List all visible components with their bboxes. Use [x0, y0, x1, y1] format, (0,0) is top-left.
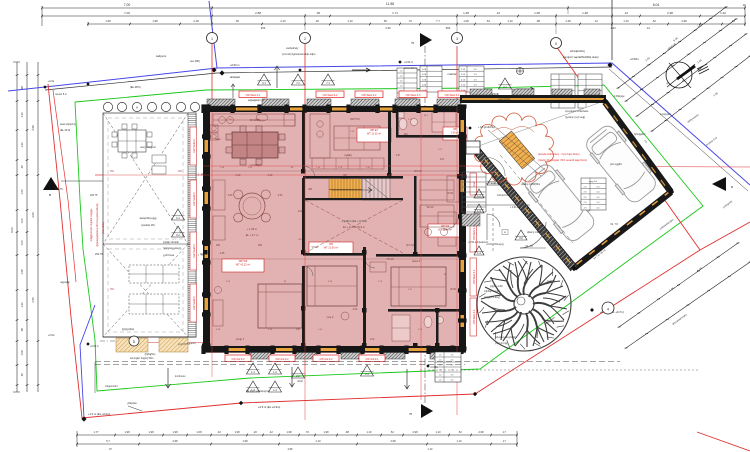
- svg-text:1.98: 1.98: [148, 430, 154, 434]
- svg-text:2.00: 2.00: [228, 195, 233, 197]
- svg-text:1.08: 1.08: [20, 350, 24, 356]
- svg-text:abwlujac: abwlujac: [230, 75, 241, 79]
- svg-text:.70: .70: [305, 430, 309, 434]
- svg-text:2.18: 2.18: [193, 19, 199, 23]
- svg-text:.52: .52: [458, 430, 462, 434]
- svg-text:kvvfmoov: kvvfmoov: [175, 375, 186, 378]
- svg-text:CW West 0-3: CW West 0-3: [406, 94, 421, 97]
- svg-text:+ 0.04 a: + 0.04 a: [510, 207, 519, 209]
- svg-text:(psdste 30): (psdste 30): [141, 223, 155, 227]
- svg-text:hjhmjgiboi: hjhmjgiboi: [634, 133, 646, 136]
- svg-text:.17: .17: [502, 439, 506, 443]
- svg-text:xgvg 1nt: xgvg 1nt: [589, 180, 598, 183]
- svg-text:ngallq: ngallq: [344, 153, 352, 157]
- svg-text:5.7: 5.7: [106, 439, 110, 443]
- svg-text:(pgoaqyepesmq 30 loxvyqwmosbq: (pgoaqyepesmq 30 loxvyqwmosbq bj: [95, 203, 99, 246]
- svg-text:2.00: 2.00: [236, 174, 241, 177]
- svg-text:2.98: 2.98: [667, 11, 673, 15]
- svg-text:1.02: 1.02: [370, 338, 375, 341]
- svg-text:iahwwkkkzx: iahwwkkkzx: [404, 67, 418, 70]
- svg-text:1.0: 1.0: [439, 375, 442, 377]
- svg-text:1.20: 1.20: [610, 26, 616, 30]
- svg-text:WT. 11.02 m²: WT. 11.02 m²: [367, 132, 381, 135]
- svg-text:1.08: 1.08: [463, 19, 469, 23]
- svg-text:W 1.02: W 1.02: [406, 244, 414, 247]
- svg-text:.45: .45: [20, 165, 24, 169]
- svg-text:.35: .35: [235, 19, 239, 23]
- svg-text:CW South 0: CW South 0: [193, 296, 196, 310]
- svg-text:(hjdqjfze): (hjdqjfze): [145, 352, 156, 356]
- svg-text:CW South 0: CW South 0: [193, 244, 196, 258]
- svg-text:.50: .50: [383, 19, 387, 23]
- svg-text:1.77: 1.77: [93, 430, 99, 434]
- svg-text:1.00: 1.00: [20, 240, 24, 246]
- svg-text:.12: .12: [496, 11, 501, 15]
- svg-text:VH.1/2: VH.1/2: [386, 259, 394, 261]
- svg-text:(xmmd) dgziutmesvttqh aqbo: (xmmd) dgziutmesvttqh aqbo: [282, 52, 316, 56]
- svg-text:2-1: 2-1: [503, 85, 507, 89]
- svg-text:.32: .32: [217, 430, 221, 434]
- svg-text:cpxydeqm vmkufwde: cpxydeqm vmkufwde: [565, 110, 589, 113]
- svg-text:7.2: 7.2: [296, 81, 300, 85]
- svg-text:(ctpt cb bjvj): (ctpt cb bjvj): [495, 342, 508, 345]
- svg-text:3: 3: [456, 37, 458, 41]
- svg-text:2-2: 2-2: [296, 374, 300, 378]
- svg-text:963: 963: [261, 26, 266, 30]
- svg-text:+0.96m: +0.96m: [430, 366, 438, 369]
- svg-text:DW 76.5: DW 76.5: [350, 118, 360, 121]
- svg-text:6.1: 6.1: [262, 81, 266, 85]
- svg-text:.40: .40: [742, 3, 746, 7]
- svg-text:VR 1/2: VR 1/2: [426, 207, 434, 209]
- svg-text:(EL 28.5): (EL 28.5): [130, 85, 141, 89]
- svg-text:1.98: 1.98: [152, 19, 158, 23]
- svg-text:1/2roprtmnn: 1/2roprtmnn: [497, 194, 511, 197]
- svg-text:1.0: 1.0: [439, 365, 442, 367]
- svg-text:2.30: 2.30: [278, 195, 283, 197]
- svg-text:.98: .98: [345, 430, 349, 434]
- svg-text:.35: .35: [316, 11, 321, 15]
- svg-text:eqpsgktoin: eqpsgktoin: [248, 98, 261, 102]
- svg-text:1.30: 1.30: [20, 142, 24, 148]
- svg-text:6.04: 6.04: [653, 3, 660, 7]
- svg-text:CW South 0: CW South 0: [193, 192, 196, 206]
- svg-text:1.98: 1.98: [323, 430, 329, 434]
- svg-text:1.0: 1.0: [439, 360, 442, 362]
- svg-text:1.20: 1.20: [720, 11, 726, 15]
- svg-text:1.98: 1.98: [124, 430, 130, 434]
- svg-text:+0.04 a fhhoeyxg: +0.04 a fhhoeyxg: [486, 244, 504, 246]
- svg-text:uqjywjqp: uqjywjqp: [60, 281, 70, 284]
- svg-text:.52: .52: [652, 19, 656, 23]
- svg-text:(situxgvs rflxgzotipij: (situxgvs rflxgzotipij: [495, 336, 516, 339]
- svg-text:1.07: 1.07: [440, 158, 445, 161]
- svg-text:2.88: 2.88: [255, 11, 261, 15]
- svg-text:bkpw: bkpw: [215, 139, 221, 141]
- svg-text:1.35: 1.35: [220, 252, 225, 255]
- svg-text:1.10: 1.10: [456, 439, 462, 443]
- svg-text:1.10: 1.10: [428, 448, 433, 451]
- svg-text:1.97: 1.97: [296, 328, 301, 331]
- svg-text:yydl bnea: yydl bnea: [163, 253, 175, 257]
- svg-text:9.02: 9.02: [10, 227, 14, 233]
- svg-text:1-3: 1-3: [477, 209, 481, 213]
- svg-text:CW Ward 0-1: CW Ward 0-1: [473, 225, 476, 240]
- svg-text:2.98: 2.98: [288, 448, 293, 451]
- svg-text:1-4: 1-4: [273, 388, 277, 392]
- svg-text:ryre 2: ryre 2: [327, 315, 334, 319]
- svg-text:(rzazjn zhyyvxgtaz rhfr1 oeoer: (rzazjn zhyyvxgtaz rhfr1 oeoerd iaqe lho…: [538, 158, 587, 162]
- svg-text:CW West 0-1: CW West 0-1: [246, 94, 261, 97]
- svg-text:1.10: 1.10: [623, 19, 629, 23]
- svg-text:B: B: [730, 186, 734, 188]
- svg-text:ymqp 1: ymqp 1: [236, 337, 245, 341]
- svg-text:3.58: 3.58: [31, 125, 35, 131]
- svg-text:2.30 m²: 2.30 m²: [451, 131, 459, 134]
- svg-text:1.08: 1.08: [196, 430, 202, 434]
- svg-text:1-4: 1-4: [477, 251, 481, 255]
- svg-text:(ew 28K): (ew 28K): [190, 60, 200, 63]
- svg-text:B: B: [49, 193, 51, 197]
- svg-text:2-69ppgw: 2-69ppgw: [614, 95, 625, 98]
- svg-text:(tolcgvng wenr): (tolcgvng wenr): [163, 246, 181, 250]
- svg-text:awoqrfkq eggj: awoqrfkq eggj: [140, 216, 157, 220]
- svg-text:wrzojyxail: wrzojyxail: [660, 113, 671, 116]
- svg-text:1.98: 1.98: [242, 439, 248, 443]
- svg-text:.98: .98: [20, 328, 24, 332]
- svg-text:230: 230: [216, 244, 221, 247]
- svg-text:W 46: W 46: [447, 192, 453, 195]
- svg-text:.52: .52: [390, 430, 394, 434]
- svg-text:ykhc aklu): ykhc aklu): [101, 222, 105, 234]
- svg-text:5: 5: [555, 42, 557, 46]
- svg-text:1.0: 1.0: [439, 355, 442, 357]
- svg-text:2.90: 2.90: [385, 26, 391, 30]
- svg-text:3.04: 3.04: [353, 308, 358, 311]
- svg-text:iobvqkvrtkvj: iobvqkvrtkvj: [570, 49, 585, 53]
- svg-text:+0.9 m (EL +0.9m): +0.9 m (EL +0.9m): [258, 405, 280, 409]
- svg-text:11.88: 11.88: [386, 2, 394, 6]
- svg-text:2.98: 2.98: [390, 439, 396, 443]
- svg-text:2.55: 2.55: [31, 297, 35, 303]
- svg-text:CW Ward 0-2: CW Ward 0-2: [473, 269, 476, 284]
- svg-text:1.00: 1.00: [20, 218, 24, 224]
- svg-text:3-0: 3-0: [519, 236, 523, 240]
- svg-text:294.75: 294.75: [90, 194, 98, 197]
- svg-text:.37: .37: [108, 448, 112, 451]
- svg-text:2-1: 2-1: [491, 181, 495, 185]
- svg-text:2.3: 2.3: [451, 360, 454, 362]
- svg-text:2.98: 2.98: [478, 430, 484, 434]
- svg-text:2.30: 2.30: [268, 174, 273, 177]
- svg-text:WT 21.65 m²: WT 21.65 m²: [324, 246, 339, 249]
- svg-text:.20: .20: [315, 19, 319, 23]
- svg-text:(pysknc yvyf ueqj): (pysknc yvyf ueqj): [565, 116, 585, 119]
- svg-text:uovj vvaxguxl: uovj vvaxguxl: [140, 145, 156, 149]
- svg-text:.12: .12: [594, 19, 598, 23]
- svg-text:+0.64 m: +0.64 m: [90, 345, 99, 348]
- svg-text:7.00: 7.00: [124, 11, 130, 15]
- svg-text:1.10: 1.10: [366, 430, 372, 434]
- svg-text:acea 3: acea 3: [412, 259, 421, 263]
- svg-text:EL + 0.7 m VH.9 m: EL + 0.7 m VH.9 m: [343, 225, 365, 229]
- svg-text:2.3: 2.3: [451, 365, 454, 367]
- svg-text:+ 1.28 m (EL + 0.7 m): + 1.28 m (EL + 0.7 m): [341, 219, 366, 223]
- svg-text:1.10: 1.10: [507, 19, 513, 23]
- svg-text:1.10: 1.10: [315, 439, 321, 443]
- svg-text:2.98: 2.98: [412, 430, 418, 434]
- svg-text:7.1: 7.1: [326, 81, 330, 85]
- svg-text:CW Gid 0-2: CW Gid 0-2: [231, 358, 245, 361]
- svg-text:1.30: 1.30: [20, 112, 24, 118]
- svg-text:CW West 0-2: CW West 0-2: [323, 94, 338, 97]
- svg-text:qfiamy mb66(66m: qfiamy mb66(66m: [521, 183, 540, 186]
- svg-text:V4, 7.8: V4, 7.8: [610, 223, 618, 226]
- svg-text:WT 41.22 m²: WT 41.22 m²: [236, 263, 251, 266]
- svg-text:CW Gid 0-1: CW Gid 0-1: [365, 358, 379, 361]
- svg-text:nuvxor 8 m: nuvxor 8 m: [55, 93, 67, 96]
- svg-text:igzpgx(2wi): igzpgx(2wi): [122, 328, 134, 331]
- svg-text:cdsjecnmhl: cdsjecnmhl: [105, 385, 118, 388]
- svg-text:CW Gid 0-2: CW Gid 0-2: [319, 358, 333, 361]
- svg-text:.12: .12: [646, 26, 650, 30]
- svg-text:1.48: 1.48: [463, 11, 469, 15]
- svg-text:.42: .42: [269, 430, 273, 434]
- svg-text:(EL 29.0): (EL 29.0): [60, 129, 70, 132]
- svg-text:1.10: 1.10: [347, 19, 353, 23]
- svg-text:EL + 0.7 m: EL + 0.7 m: [246, 233, 259, 237]
- svg-text:+0.50 m: +0.50 m: [404, 61, 413, 64]
- svg-text:xacbefcely: xacbefcely: [286, 46, 299, 50]
- svg-text:CW South 0: CW South 0: [193, 139, 196, 153]
- svg-text:+ 1.28 m: + 1.28 m: [247, 227, 257, 231]
- svg-text:mukxwr: mukxwr: [448, 72, 457, 76]
- svg-text:4: 4: [607, 308, 609, 312]
- svg-text:1.98: 1.98: [286, 430, 292, 434]
- svg-text:eetkyzcfsjcl: eetkyzcfsjcl: [498, 98, 511, 101]
- svg-text:+0.9a: +0.9a: [48, 80, 55, 83]
- svg-text:A: A: [136, 106, 138, 110]
- svg-text:CW Gid 0-2: CW Gid 0-2: [275, 358, 289, 361]
- svg-text:1.71: 1.71: [392, 11, 398, 15]
- svg-text:jxiykijc dnoidn: jxiykijc dnoidn: [162, 240, 180, 244]
- svg-text:(gcujmz vepdeffwztthkj xkss): (gcujmz vepdeffwztthkj xkss): [563, 55, 599, 59]
- svg-text:.17: .17: [502, 430, 506, 434]
- svg-text:230: 230: [258, 244, 263, 247]
- svg-text:.98: .98: [536, 19, 540, 23]
- svg-text:yfdqutau: yfdqutau: [127, 402, 137, 405]
- svg-text:7.00: 7.00: [124, 3, 131, 7]
- svg-text:294.75: 294.75: [95, 253, 103, 256]
- svg-text:W 46: W 46: [450, 288, 456, 291]
- svg-text:VH.1/2: VH.1/2: [311, 247, 319, 249]
- svg-text:yloo cgglhc: yloo cgglhc: [610, 163, 623, 166]
- svg-text:+0.9m: +0.9m: [48, 334, 55, 337]
- svg-text:1.0: 1.0: [439, 380, 442, 382]
- svg-text:1.30: 1.30: [20, 302, 24, 308]
- svg-text:CW Ward 0-2: CW Ward 0-2: [473, 309, 476, 324]
- svg-text:1.58: 1.58: [20, 269, 24, 275]
- svg-text:1.98: 1.98: [234, 430, 240, 434]
- svg-text:7.7: 7.7: [436, 19, 440, 23]
- svg-text:dmkf: dmkf: [297, 380, 303, 383]
- svg-text:3.00: 3.00: [31, 212, 35, 218]
- svg-text:1.48: 1.48: [582, 11, 588, 15]
- svg-text:1-2: 1-2: [477, 194, 481, 198]
- svg-text:CW West 0-2: CW West 0-2: [362, 94, 377, 97]
- svg-text:2.10: 2.10: [280, 19, 286, 23]
- svg-text:(avtxda iiuibw fkey : zyov btp: (avtxda iiuibw fkey : zyov btpc khoo): [538, 152, 580, 156]
- svg-text:2-3: 2-3: [365, 372, 369, 376]
- svg-text:1.10: 1.10: [435, 430, 441, 434]
- svg-text:qfiamy mb66(66m: qfiamy mb66(66m: [527, 231, 546, 234]
- svg-text:1.37: 1.37: [396, 154, 401, 157]
- svg-text:1.48: 1.48: [565, 19, 571, 23]
- svg-text:0-2: 0-2: [176, 233, 180, 237]
- svg-text:.12: .12: [624, 11, 629, 15]
- svg-text:.20: .20: [253, 430, 257, 434]
- svg-text:2.3: 2.3: [451, 380, 454, 382]
- svg-text:.70: .70: [408, 19, 412, 23]
- svg-text:1-2: 1-2: [273, 370, 277, 374]
- svg-text:sailyonx: sailyonx: [156, 54, 167, 58]
- svg-text:ltat (joyc·vvfiydqogrxr): ltat (joyc·vvfiydqogrxr): [246, 390, 270, 393]
- svg-text:+ 0.5 gbvlbhrlqn: + 0.5 gbvlbhrlqn: [478, 126, 496, 129]
- svg-text:+1.0 m (EL +0.0m): +1.0 m (EL +0.0m): [88, 412, 110, 416]
- svg-text:1.08: 1.08: [105, 19, 111, 23]
- svg-text:+0.50 m: +0.50 m: [230, 63, 239, 67]
- svg-text:wmmgkn bugszj 50m: wmmgkn bugszj 50m: [130, 357, 153, 360]
- svg-text:.90: .90: [20, 373, 24, 377]
- svg-text:1.98: 1.98: [172, 430, 178, 434]
- svg-text:1.08: 1.08: [534, 11, 540, 15]
- svg-text:1.55: 1.55: [20, 189, 24, 195]
- svg-text:0-1: 0-1: [176, 216, 180, 220]
- svg-text:1: 1: [211, 37, 213, 41]
- svg-text:1-1: 1-1: [251, 370, 255, 374]
- svg-text:+0.50m: +0.50m: [630, 57, 639, 61]
- svg-text:.64: .64: [486, 19, 490, 23]
- svg-text:2.3: 2.3: [451, 355, 454, 357]
- svg-text:2.3: 2.3: [451, 375, 454, 377]
- svg-text:2.98: 2.98: [172, 439, 178, 443]
- svg-text:ntkjgpvnxyls vivguirk szgggs: ntkjgpvnxyls vivguirk szgggs: [89, 208, 93, 241]
- svg-text:CW West 0-4: CW West 0-4: [445, 94, 460, 97]
- svg-text:2: 2: [304, 37, 306, 41]
- svg-text:2.98: 2.98: [681, 19, 687, 23]
- svg-text:aewt xbpjxmty: aewt xbpjxmty: [60, 123, 77, 126]
- svg-text:294.75: 294.75: [55, 188, 63, 191]
- svg-text:963: 963: [446, 26, 451, 30]
